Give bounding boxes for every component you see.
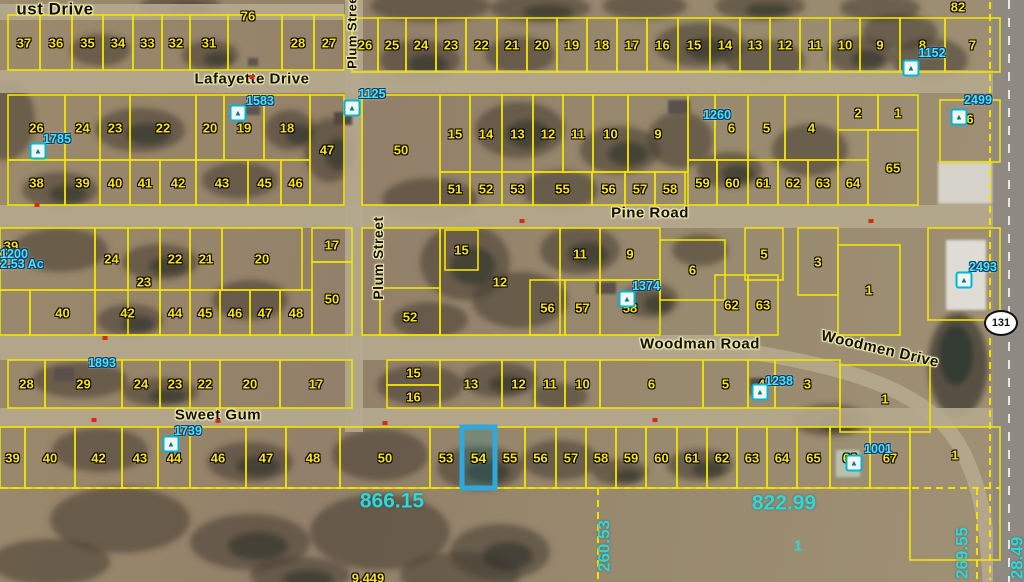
parcel-boundary[interactable] [8, 15, 40, 70]
parcel-boundary[interactable] [707, 427, 737, 488]
parcel-boundary[interactable] [190, 15, 228, 70]
parcel-boundary[interactable] [593, 95, 628, 172]
parcel-boundary[interactable] [838, 95, 878, 130]
parcel-boundary[interactable] [440, 172, 470, 205]
parcel-boundary[interactable] [281, 160, 310, 205]
parcel-boundary[interactable] [533, 172, 592, 205]
parcel-boundary[interactable] [646, 427, 677, 488]
parcel-boundary[interactable] [196, 95, 224, 160]
parcel-boundary[interactable] [436, 18, 466, 72]
parcel-boundary[interactable] [387, 360, 440, 385]
parcel-boundary[interactable] [556, 427, 586, 488]
parcel-boundary[interactable] [710, 18, 740, 72]
parcel-boundary[interactable] [387, 385, 440, 408]
parcel-boundary[interactable] [530, 280, 565, 335]
parcel-boundary[interactable] [502, 95, 533, 172]
parcel-boundary[interactable] [220, 360, 280, 408]
parcel-boundary[interactable] [715, 275, 748, 335]
parcel-boundary[interactable] [378, 18, 406, 72]
parcel-boundary[interactable] [220, 290, 250, 335]
parcel-boundary[interactable] [560, 228, 600, 280]
parcel-boundary[interactable] [190, 228, 222, 290]
parcel-boundary[interactable] [617, 18, 647, 72]
parcel-boundary[interactable] [30, 290, 95, 335]
parcel-boundary[interactable] [440, 360, 502, 408]
parcel-boundary[interactable] [563, 95, 593, 172]
parcel-boundary[interactable] [430, 427, 462, 488]
parcel-boundary[interactable] [798, 228, 838, 295]
parcel-boundary[interactable] [655, 172, 685, 205]
parcel-boundary[interactable] [440, 95, 470, 172]
parcel-boundary[interactable] [830, 18, 860, 72]
parcel-boundary[interactable] [868, 130, 918, 205]
parcel-boundary[interactable] [778, 160, 808, 205]
parcel-boundary[interactable] [600, 360, 703, 408]
parcel-boundary[interactable] [557, 18, 587, 72]
parcel-boundary[interactable] [75, 427, 122, 488]
parcel-boundary[interactable] [565, 360, 600, 408]
parcel-boundary[interactable] [466, 18, 497, 72]
parcel-boundary[interactable] [340, 427, 430, 488]
parcel-boundary[interactable] [860, 18, 900, 72]
parcel-boundary[interactable] [95, 228, 128, 290]
parcel-boundary[interactable] [100, 95, 130, 160]
parcel-boundary[interactable] [502, 172, 533, 205]
parcel-boundary[interactable] [228, 15, 282, 70]
parcel-boundary[interactable] [840, 365, 930, 432]
parcel-boundary[interactable] [678, 18, 710, 72]
parcel-boundary[interactable] [625, 172, 655, 205]
parcel-boundary[interactable] [592, 172, 625, 205]
parcel-boundary[interactable] [246, 427, 286, 488]
parcel-boundary[interactable] [0, 290, 30, 335]
parcel-boundary[interactable] [838, 160, 868, 205]
parcel-boundary[interactable] [740, 18, 770, 72]
parcel-boundary[interactable] [72, 15, 103, 70]
parcel-boundary[interactable] [445, 230, 478, 270]
parcel-boundary[interactable] [0, 228, 95, 290]
parcel-boundary[interactable] [362, 95, 440, 205]
parcel-boundary[interactable] [65, 95, 100, 160]
parcel-boundary[interactable] [282, 15, 314, 70]
parcel-boundary[interactable] [565, 280, 600, 335]
parcel-boundary[interactable] [280, 360, 352, 408]
parcel-boundary[interactable] [800, 18, 830, 72]
parcel-boundary[interactable] [160, 228, 190, 290]
parcel-boundary[interactable] [380, 288, 440, 335]
parcel-boundary[interactable] [533, 95, 563, 172]
parcel-boundary[interactable] [910, 427, 1000, 560]
parcel-boundary[interactable] [470, 172, 502, 205]
parcel-boundary[interactable] [312, 228, 352, 262]
parcel-boundary[interactable] [878, 95, 918, 130]
parcel-boundary[interactable] [103, 15, 133, 70]
parcel-boundary[interactable] [737, 427, 767, 488]
parcel-boundary[interactable] [628, 95, 688, 172]
parcel-boundary[interactable] [314, 15, 344, 70]
parcel-boundary[interactable] [25, 427, 75, 488]
parcel-boundary[interactable] [264, 95, 310, 160]
parcel-boundary[interactable] [900, 18, 945, 72]
parcel-boundary[interactable] [280, 290, 312, 335]
parcel-boundary[interactable] [222, 228, 302, 290]
parcel-boundary[interactable] [65, 160, 100, 205]
parcel-boundary[interactable] [248, 160, 281, 205]
parcel-boundary[interactable] [160, 160, 196, 205]
parcel-boundary[interactable] [808, 160, 838, 205]
parcel-boundary[interactable] [8, 95, 65, 160]
parcel-boundary[interactable] [677, 427, 707, 488]
parcel-boundary[interactable] [312, 262, 352, 335]
parcel-boundary[interactable] [525, 427, 556, 488]
parcel-boundary[interactable] [250, 290, 280, 335]
parcel-boundary[interactable] [945, 18, 1000, 72]
parcel-boundary[interactable] [600, 280, 660, 335]
parcel-boundary[interactable] [502, 360, 535, 408]
parcel-boundary[interactable] [785, 95, 838, 160]
parcel-boundary[interactable] [352, 18, 378, 72]
parcel-boundary[interactable] [748, 160, 778, 205]
parcel-boundary[interactable] [158, 427, 190, 488]
parcel-boundary[interactable] [748, 275, 778, 335]
parcel-boundary[interactable] [130, 160, 160, 205]
parcel-boundary[interactable] [160, 360, 190, 408]
parcel-boundary[interactable] [535, 360, 565, 408]
parcel-boundary[interactable] [133, 15, 162, 70]
parcel-boundary[interactable] [703, 360, 748, 408]
parcel-boundary[interactable] [830, 427, 870, 488]
parcel-boundary[interactable] [470, 95, 502, 172]
parcel-boundary[interactable] [870, 427, 910, 488]
parcel-boundary[interactable] [224, 95, 264, 160]
parcel-boundary[interactable] [600, 228, 660, 280]
parcel-boundary[interactable] [40, 15, 72, 70]
parcel-boundary[interactable] [160, 290, 190, 335]
parcel-boundary[interactable] [196, 160, 248, 205]
parcel-boundary[interactable] [130, 95, 196, 160]
parcel-boundary[interactable] [122, 360, 160, 408]
parcel-boundary[interactable] [767, 427, 797, 488]
parcel-boundary[interactable] [310, 95, 344, 205]
parcel-boundary[interactable] [586, 427, 616, 488]
parcel-boundary[interactable] [745, 228, 783, 280]
parcel-boundary[interactable] [122, 427, 158, 488]
parcel-boundary[interactable] [162, 15, 190, 70]
gis-parcel-map[interactable]: 3736353433323128272625242322212019181716… [0, 0, 1024, 582]
parcel-boundary[interactable] [190, 360, 220, 408]
parcel-boundary[interactable] [8, 160, 65, 205]
parcel-boundary[interactable] [647, 18, 678, 72]
parcel-boundary[interactable] [527, 18, 557, 72]
parcel-lines-layer [0, 0, 1024, 582]
parcel-boundary[interactable] [770, 18, 800, 72]
parcel-boundary[interactable] [688, 95, 715, 160]
parcel-boundary[interactable] [587, 18, 617, 72]
parcel-boundary[interactable] [8, 360, 45, 408]
parcel-boundary[interactable] [45, 360, 122, 408]
parcel-boundary[interactable] [748, 360, 775, 408]
parcel-boundary[interactable] [497, 18, 527, 72]
parcel-boundary[interactable] [286, 427, 340, 488]
parcel-boundary[interactable] [717, 160, 748, 205]
parcel-boundary[interactable] [190, 290, 220, 335]
parcel-boundary[interactable] [0, 427, 25, 488]
parcel-boundary[interactable] [616, 427, 646, 488]
parcel-boundary[interactable] [100, 160, 130, 205]
parcel-boundary[interactable] [688, 160, 717, 205]
parcel-boundary[interactable] [715, 95, 748, 160]
parcel-boundary[interactable] [797, 427, 830, 488]
parcel-boundary[interactable] [495, 427, 525, 488]
parcel-boundary[interactable] [838, 245, 900, 335]
parcel-boundary[interactable] [406, 18, 436, 72]
parcel-boundary[interactable] [775, 360, 840, 408]
selected-parcel-54[interactable] [462, 427, 495, 488]
parcel-boundary[interactable] [748, 95, 785, 160]
parcel-boundary[interactable] [95, 290, 160, 335]
parcel-boundary[interactable] [190, 427, 246, 488]
